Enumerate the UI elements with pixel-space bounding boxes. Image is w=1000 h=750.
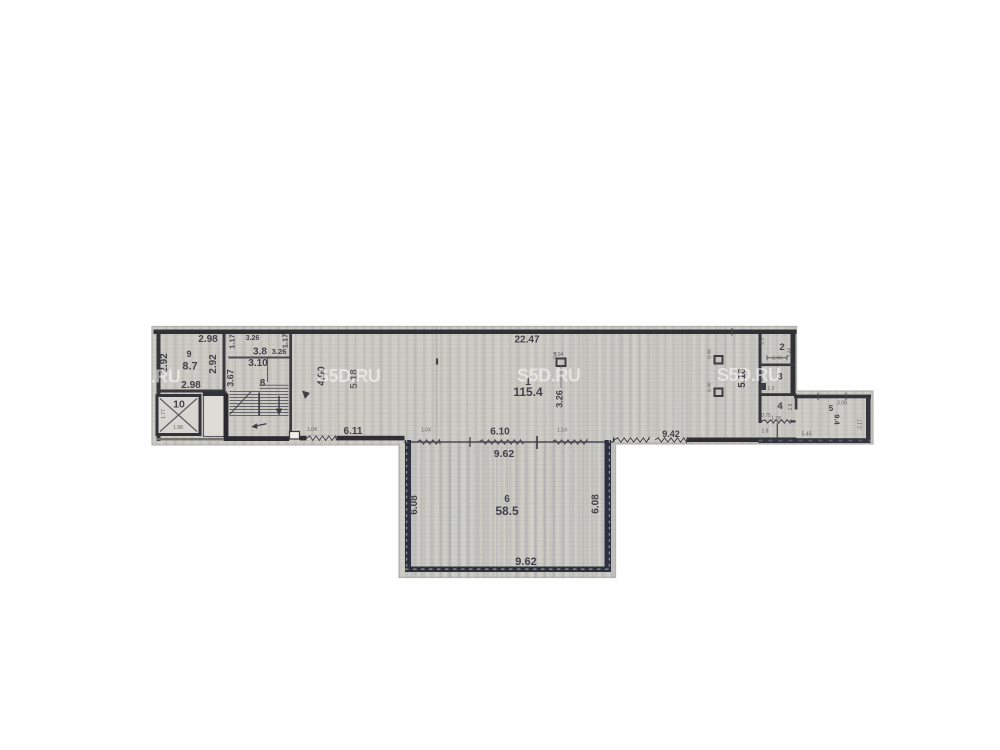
svg-text:58.5: 58.5 [495, 504, 519, 518]
svg-text:3.26: 3.26 [272, 347, 287, 356]
svg-text:S5D.RU: S5D.RU [517, 366, 581, 386]
svg-text:22.47: 22.47 [514, 335, 539, 346]
svg-text:6.08: 6.08 [409, 495, 420, 515]
svg-text:2.17: 2.17 [858, 419, 864, 429]
svg-text:3.26: 3.26 [246, 335, 260, 342]
svg-text:3.67: 3.67 [226, 369, 236, 387]
svg-text:S5D.RU: S5D.RU [717, 365, 781, 385]
svg-text:1.17: 1.17 [228, 334, 237, 349]
svg-text:6.10: 6.10 [490, 427, 510, 438]
svg-text:115.4: 115.4 [513, 385, 543, 399]
svg-text:1.04: 1.04 [421, 428, 431, 434]
svg-text:2.98: 2.98 [198, 334, 218, 345]
svg-text:3.26: 3.26 [555, 390, 565, 408]
svg-text:1.77: 1.77 [161, 409, 167, 419]
svg-text:1.9: 1.9 [788, 403, 794, 410]
svg-text:1.04: 1.04 [307, 427, 317, 433]
svg-text:8.7: 8.7 [182, 361, 197, 373]
svg-text:9.4: 9.4 [833, 414, 842, 425]
svg-text:3.08: 3.08 [837, 401, 847, 407]
svg-text:1.2: 1.2 [768, 386, 775, 392]
svg-text:1.8: 1.8 [762, 429, 769, 435]
svg-text:2.92: 2.92 [208, 354, 219, 374]
svg-text:0.9: 0.9 [760, 337, 766, 344]
svg-text:6.08: 6.08 [591, 494, 602, 514]
svg-text:1.14: 1.14 [557, 428, 567, 434]
svg-text:9.62: 9.62 [494, 448, 515, 460]
svg-text:3.04: 3.04 [554, 352, 564, 358]
svg-text:S5D.RU: S5D.RU [317, 366, 381, 386]
svg-text:0.46: 0.46 [707, 349, 713, 359]
svg-text:2.46: 2.46 [772, 356, 782, 362]
svg-text:5: 5 [829, 404, 834, 413]
svg-text:9.62: 9.62 [515, 556, 536, 568]
svg-text:0.75: 0.75 [761, 413, 771, 419]
svg-text:6.11: 6.11 [344, 426, 363, 437]
svg-text:2: 2 [779, 342, 784, 353]
svg-text:5.45: 5.45 [802, 432, 812, 438]
svg-text:3.10: 3.10 [248, 358, 268, 369]
svg-text:9.42: 9.42 [662, 429, 680, 439]
svg-text:0.46: 0.46 [707, 382, 713, 392]
svg-text:4: 4 [777, 401, 783, 412]
svg-text:10: 10 [173, 399, 185, 411]
svg-text:1.98: 1.98 [173, 425, 183, 431]
svg-text:2.98: 2.98 [181, 380, 201, 391]
svg-text:8: 8 [260, 378, 266, 389]
svg-text:3.8: 3.8 [253, 347, 267, 358]
svg-text:2.46: 2.46 [788, 347, 794, 357]
svg-text:1.78: 1.78 [771, 416, 781, 422]
svg-text:9: 9 [186, 349, 191, 359]
